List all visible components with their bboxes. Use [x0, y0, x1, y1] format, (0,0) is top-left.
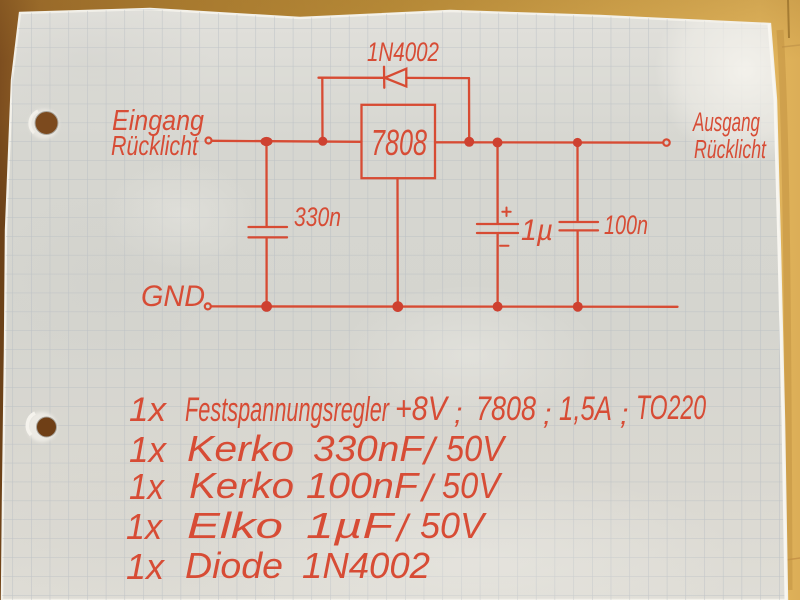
svg-text:Ausgang: Ausgang — [692, 107, 760, 137]
svg-text:50V: 50V — [446, 428, 507, 469]
svg-text:1x: 1x — [126, 546, 166, 587]
svg-text:330n: 330n — [294, 202, 341, 232]
svg-text:100n: 100n — [604, 210, 648, 240]
svg-text:1µF: 1µF — [306, 505, 396, 546]
svg-text:1x: 1x — [129, 391, 167, 429]
svg-text:1x: 1x — [129, 429, 168, 470]
svg-text:50V: 50V — [442, 465, 503, 506]
svg-text:100nF: 100nF — [306, 465, 420, 506]
svg-text:GND: GND — [141, 280, 205, 313]
svg-text:Diode: Diode — [185, 545, 283, 586]
svg-text:1µ: 1µ — [521, 214, 553, 247]
svg-text:Festspannungsregler: Festspannungsregler — [185, 391, 390, 429]
svg-text:1,5A: 1,5A — [559, 390, 612, 428]
svg-text:50V: 50V — [420, 505, 487, 546]
svg-text:1N4002: 1N4002 — [367, 37, 439, 67]
svg-text:330nF: 330nF — [313, 428, 425, 469]
svg-text:7808: 7808 — [371, 122, 427, 163]
svg-text:Elko: Elko — [187, 505, 283, 546]
svg-text:;: ; — [454, 397, 462, 430]
svg-text:Kerko: Kerko — [189, 465, 294, 506]
svg-text:7808: 7808 — [476, 390, 536, 428]
svg-text:Kerko: Kerko — [187, 428, 294, 469]
svg-text:TO220: TO220 — [636, 389, 706, 427]
svg-text:Rücklicht: Rücklicht — [111, 130, 199, 161]
svg-text:1N4002: 1N4002 — [302, 545, 430, 586]
svg-text:+8V: +8V — [395, 390, 450, 428]
svg-text:1x: 1x — [126, 506, 164, 547]
svg-text:;: ; — [620, 398, 628, 431]
svg-text:Rücklicht: Rücklicht — [694, 134, 767, 164]
svg-text:1x: 1x — [129, 466, 166, 507]
svg-text:;: ; — [543, 398, 551, 431]
